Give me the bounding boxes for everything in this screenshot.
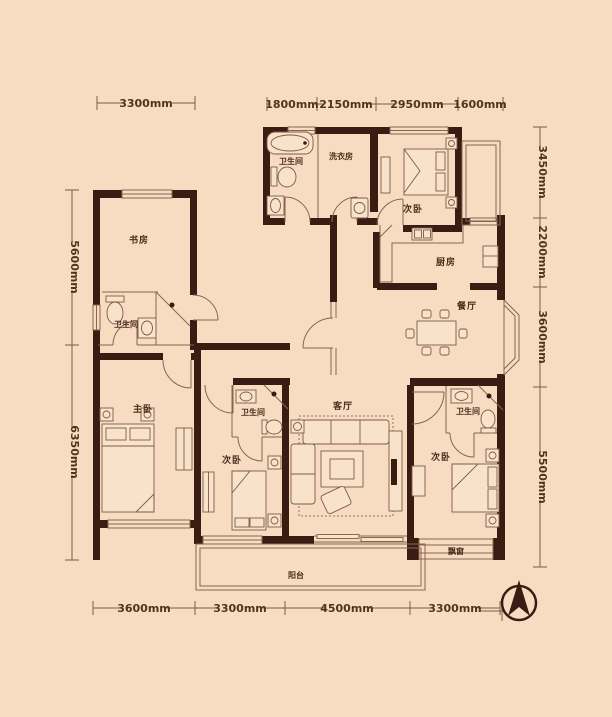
door-master [163, 360, 191, 388]
room-label-bay-window: 飘窗 [448, 546, 464, 556]
compass-icon [478, 580, 536, 621]
dim-label-right-0: 3450mm [536, 145, 549, 199]
dim-label-top-2: 2950mm [390, 98, 444, 111]
room-label-bath-top: 卫生间 [279, 156, 303, 166]
nightstand [446, 197, 457, 208]
room-label-master: 主卧 [133, 403, 153, 415]
room-label-kitchen: 厨房 [436, 256, 456, 268]
dim-label-left-1: 6350mm [68, 425, 81, 479]
side-table [291, 420, 304, 433]
room-label-bath-left: 卫生间 [114, 319, 138, 329]
room-label-study: 书房 [129, 234, 149, 246]
balcony-outline [196, 544, 425, 590]
dim-label-bottom-1: 3300mm [213, 602, 267, 615]
dim-label-right-2: 3600mm [536, 310, 549, 364]
bed-bedroom-top [404, 149, 448, 195]
dim-label-top-0: 1800mm [265, 98, 319, 111]
plant-stand [486, 449, 499, 462]
washing-machine [351, 198, 368, 218]
vanity-bath-left [138, 318, 156, 338]
dim-label-top-left: 3300mm [119, 97, 173, 110]
dim-label-top-1: 2150mm [319, 98, 373, 111]
dimensions-bottom: 3600mm 3300mm 4500mm 3300mm [93, 601, 500, 615]
plant-stand [268, 456, 281, 469]
door-study [193, 295, 218, 320]
toilet-bath-mid [262, 420, 282, 434]
nightstand [100, 408, 113, 421]
floor-plan-svg: 书房 卫生间 主卧 卫生间 洗衣房 次卧 厨房 餐厅 客厅 次卧 卫生间 次卧 … [0, 0, 612, 717]
bathtub [267, 132, 313, 154]
toilet-bath-top [271, 167, 296, 187]
room-label-bedroom-top: 次卧 [403, 203, 423, 215]
plant-stand [268, 514, 281, 527]
vanity-bath-mid [236, 390, 256, 403]
dining-chair [440, 310, 449, 318]
sliding-door-balcony [314, 535, 407, 543]
dining-chair [440, 347, 449, 355]
door-bedroom-top [377, 199, 403, 225]
armchair [320, 485, 352, 514]
dim-label-right-3: 5500mm [536, 450, 549, 504]
window-dining-bay [504, 300, 519, 375]
room-label-balcony: 阳台 [288, 570, 304, 580]
tv-cabinet [389, 431, 402, 511]
shower-bath-left [156, 292, 190, 326]
dim-label-left-0: 5600mm [68, 240, 81, 294]
window-bath-left [93, 305, 100, 330]
sink-bath-top [267, 196, 284, 215]
window-bedroom-mid [203, 536, 262, 544]
dim-label-bottom-3: 3300mm [428, 602, 482, 615]
door-entry [303, 318, 333, 348]
vanity-bath-right [451, 389, 472, 403]
door-bath-top [285, 197, 310, 222]
door-bath-right [450, 433, 474, 457]
dresser-bedroom-right [412, 466, 425, 496]
floor-plan-canvas: 书房 卫生间 主卧 卫生间 洗衣房 次卧 厨房 餐厅 客厅 次卧 卫生间 次卧 … [0, 0, 612, 717]
dimensions-right: 3450mm 2200mm 3600mm 5500mm [533, 127, 550, 567]
toilet-bath-right [481, 410, 496, 433]
dining-chair [406, 329, 414, 338]
dining-chair [422, 347, 431, 355]
dimensions-left: 5600mm 6350mm [65, 190, 82, 560]
room-label-bedroom-mid: 次卧 [222, 454, 242, 466]
room-labels: 书房 卫生间 主卧 卫生间 洗衣房 次卧 厨房 餐厅 客厅 次卧 卫生间 次卧 … [114, 151, 480, 580]
dining-chair [459, 329, 467, 338]
fridge [483, 246, 498, 267]
room-label-laundry: 洗衣房 [329, 151, 353, 161]
nightstand [446, 138, 457, 149]
bed-master [102, 424, 154, 512]
door-bedroom-right [412, 392, 444, 424]
door-bedroom-mid [205, 385, 233, 413]
window-bedroom-top [390, 127, 448, 134]
dim-label-bottom-2: 4500mm [320, 602, 374, 615]
sofa-main [303, 420, 389, 444]
room-label-bath-right: 卫生间 [456, 406, 480, 416]
room-label-bath-mid: 卫生间 [241, 407, 265, 417]
dining-table [417, 321, 456, 345]
dim-label-top-3: 1600mm [453, 98, 507, 111]
window-master [108, 520, 190, 528]
plant-stand [486, 514, 499, 527]
dining-chair [422, 310, 431, 318]
dim-label-bottom-0: 3600mm [117, 602, 171, 615]
dimensions-top: 1800mm 2150mm 2950mm 1600mm [265, 97, 507, 111]
wardrobe-master [176, 428, 192, 470]
kitchen-counter [380, 225, 463, 282]
dresser-bedroom-top [381, 157, 390, 193]
window-bedroom-top-bay [462, 141, 500, 225]
bed-bedroom-mid [232, 471, 266, 530]
bed-bedroom-right [452, 464, 499, 512]
wardrobe-bedroom-mid [203, 472, 214, 512]
room-label-dining: 餐厅 [456, 300, 477, 312]
room-label-living: 客厅 [332, 400, 353, 412]
room-label-bedroom-right: 次卧 [431, 451, 451, 463]
dim-label-right-1: 2200mm [536, 225, 549, 279]
dimension-top-left: 3300mm [97, 96, 195, 110]
sofa-side [291, 444, 315, 504]
window-study [122, 190, 172, 198]
coffee-table [321, 451, 363, 487]
